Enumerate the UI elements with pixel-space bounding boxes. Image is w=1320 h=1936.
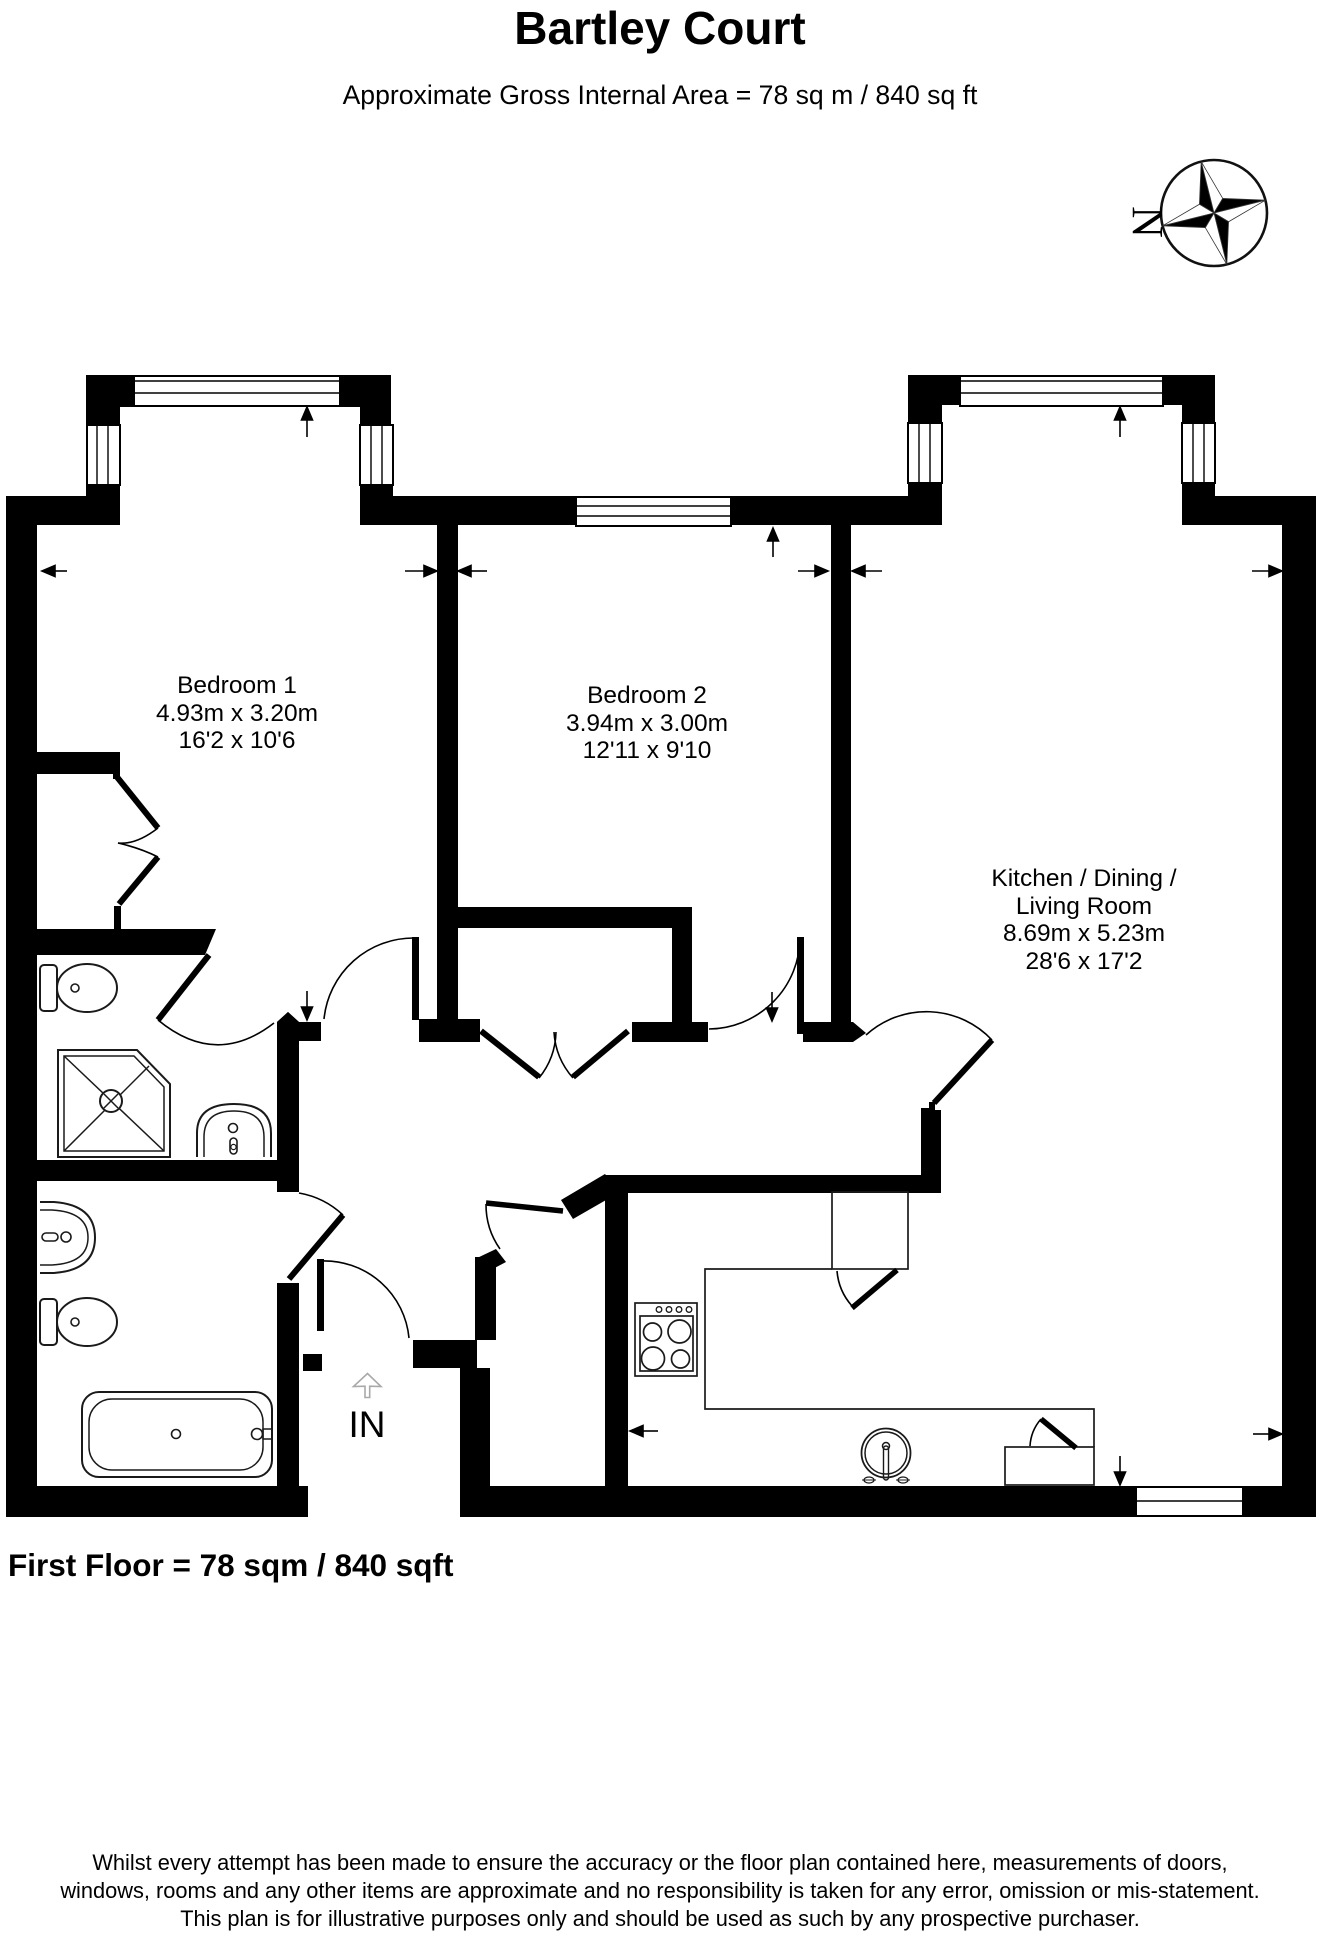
svg-text:windows, rooms and any other i: windows, rooms and any other items are a…: [59, 1878, 1259, 1903]
svg-text:12'11 x 9'10: 12'11 x 9'10: [583, 737, 712, 764]
svg-text:Bedroom 1: Bedroom 1: [177, 672, 297, 699]
svg-text:Approximate Gross Internal Are: Approximate Gross Internal Area = 78 sq …: [343, 80, 978, 110]
svg-text:First Floor = 78 sqm / 840 sqf: First Floor = 78 sqm / 840 sqft: [8, 1547, 454, 1583]
svg-text:This plan is for illustrative: This plan is for illustrative purposes o…: [180, 1906, 1140, 1931]
svg-text:Whilst every attempt has been: Whilst every attempt has been made to en…: [92, 1850, 1227, 1875]
svg-text:N: N: [1123, 206, 1172, 238]
svg-text:3.94m x 3.00m: 3.94m x 3.00m: [566, 710, 728, 737]
svg-text:Bartley Court: Bartley Court: [514, 2, 805, 54]
svg-text:4.93m x 3.20m: 4.93m x 3.20m: [156, 700, 318, 727]
svg-text:IN: IN: [349, 1404, 386, 1445]
svg-text:8.69m x 5.23m: 8.69m x 5.23m: [1003, 920, 1165, 947]
svg-text:Kitchen / Dining /: Kitchen / Dining /: [991, 865, 1176, 892]
svg-text:Bedroom 2: Bedroom 2: [587, 682, 707, 709]
svg-text:28'6 x 17'2: 28'6 x 17'2: [1026, 948, 1143, 975]
svg-text:Living Room: Living Room: [1016, 893, 1152, 920]
svg-text:16'2 x 10'6: 16'2 x 10'6: [179, 727, 296, 754]
